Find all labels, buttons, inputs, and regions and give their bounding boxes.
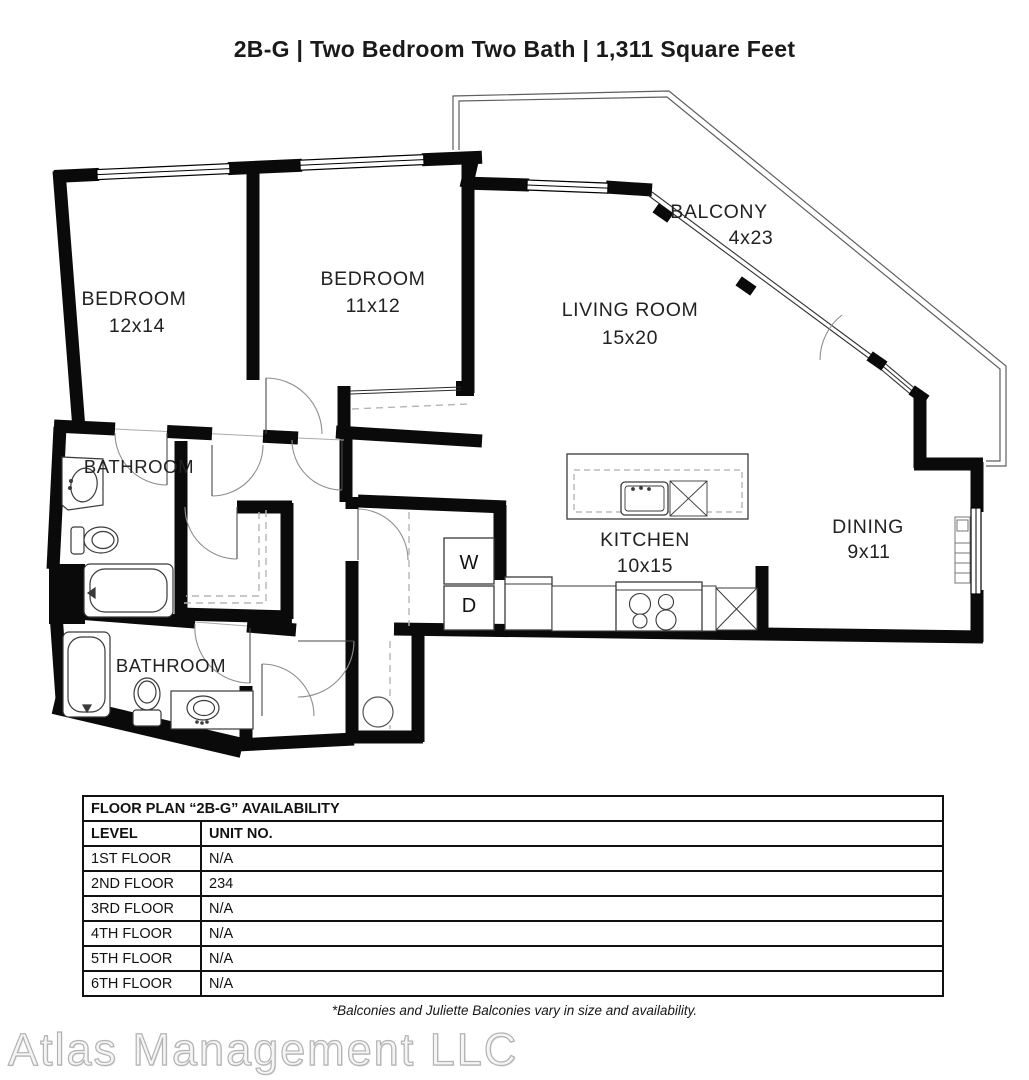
bedroom-2-label: BEDROOM xyxy=(321,268,426,290)
island-sink-icon xyxy=(621,482,668,515)
table-title-row: FLOOR PLAN “2B-G” AVAILABILITY xyxy=(83,796,943,821)
bedroom1-window xyxy=(97,164,230,180)
table-header-row: LEVEL UNIT NO. xyxy=(83,821,943,846)
hall-door-arc xyxy=(292,440,342,490)
dining-window xyxy=(971,508,981,594)
table-row: 4TH FLOOR N/A xyxy=(83,921,943,946)
hall2-door-arc xyxy=(262,664,314,716)
dryer-label: D xyxy=(462,595,476,617)
col-header-unit: UNIT NO. xyxy=(201,821,943,846)
dishwasher-icon xyxy=(670,481,707,516)
bedroom-1-label: BEDROOM xyxy=(82,288,187,310)
table-row: 2ND FLOOR 234 xyxy=(83,871,943,896)
balcony-dims: 4x23 xyxy=(729,227,774,249)
level-cell: 6TH FLOOR xyxy=(83,971,201,996)
balcony-door-arc xyxy=(820,315,842,360)
bathroom-2-label: BATHROOM xyxy=(116,655,226,676)
closet-dashes xyxy=(184,404,468,729)
bedroom-1-dims: 12x14 xyxy=(109,315,165,337)
table-row: 6TH FLOOR N/A xyxy=(83,971,943,996)
pantry-cabinet xyxy=(716,588,757,630)
dining-label: DINING xyxy=(832,516,904,538)
bedroom2-door-arc xyxy=(266,378,322,434)
table-row: 3RD FLOOR N/A xyxy=(83,896,943,921)
kitchen-island xyxy=(567,454,748,519)
table-row: 1ST FLOOR N/A xyxy=(83,846,943,871)
toilet-2-icon xyxy=(133,678,161,726)
balcony-label: BALCONY xyxy=(670,201,767,223)
table-title: FLOOR PLAN “2B-G” AVAILABILITY xyxy=(83,796,943,821)
table-row: 5TH FLOOR N/A xyxy=(83,946,943,971)
walkin-closet-rod xyxy=(186,512,259,596)
watermark: Atlas Management LLC xyxy=(8,1024,518,1076)
col-header-level: LEVEL xyxy=(83,821,201,846)
level-cell: 4TH FLOOR xyxy=(83,921,201,946)
unit-cell: 234 xyxy=(201,871,943,896)
availability-table: FLOOR PLAN “2B-G” AVAILABILITY LEVEL UNI… xyxy=(82,795,944,997)
level-cell: 3RD FLOOR xyxy=(83,896,201,921)
bathtub-icon xyxy=(84,564,173,617)
bedroom1-door-arc xyxy=(212,445,263,496)
unit-cell: N/A xyxy=(201,846,943,871)
refrigerator-icon xyxy=(505,577,552,630)
unit-cell: N/A xyxy=(201,946,943,971)
bathroom-1-label: BATHROOM xyxy=(84,456,194,477)
dining-dims: 9x11 xyxy=(847,541,890,563)
bedroom2-closet-rod xyxy=(352,404,468,409)
level-cell: 5TH FLOOR xyxy=(83,946,201,971)
living-room-label: LIVING ROOM xyxy=(562,299,699,321)
closet-door-arc xyxy=(185,507,237,559)
level-cell: 1ST FLOOR xyxy=(83,846,201,871)
bedroom2-window xyxy=(300,155,424,171)
floor-plan: BEDROOM 12x14 BEDROOM 11x12 LIVING ROOM … xyxy=(0,0,1029,780)
bedroom-2-dims: 11x12 xyxy=(346,295,401,317)
footnote: *Balconies and Juliette Balconies vary i… xyxy=(0,1003,1029,1018)
toilet-icon xyxy=(71,527,118,554)
living-room-window xyxy=(527,180,608,193)
bathtub-2-icon xyxy=(63,632,110,717)
stove-icon xyxy=(616,582,702,631)
washer-label: W xyxy=(460,552,479,574)
unit-cell: N/A xyxy=(201,921,943,946)
wd-closet-door-arc xyxy=(358,509,408,560)
radiator-icon xyxy=(955,517,970,583)
kitchen-label: KITCHEN xyxy=(600,529,690,551)
unit-cell: N/A xyxy=(201,971,943,996)
page: 2B-G | Two Bedroom Two Bath | 1,311 Squa… xyxy=(0,0,1029,1080)
unit-cell: N/A xyxy=(201,896,943,921)
water-heater-icon xyxy=(363,697,393,727)
bedroom2-closet-front xyxy=(350,387,461,394)
walkin-closet-rod-2 xyxy=(184,510,266,603)
living-room-dims: 15x20 xyxy=(602,327,658,349)
level-cell: 2ND FLOOR xyxy=(83,871,201,896)
sink-2-icon xyxy=(171,691,253,729)
kitchen-dims: 10x15 xyxy=(617,555,673,577)
